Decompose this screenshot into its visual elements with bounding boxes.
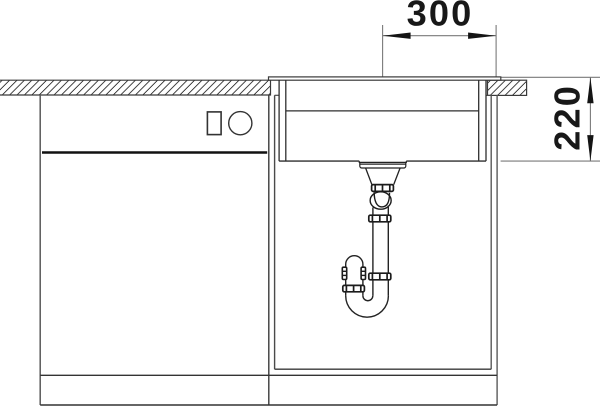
svg-text:220: 220 [547, 84, 588, 151]
svg-text:300: 300 [407, 0, 474, 34]
